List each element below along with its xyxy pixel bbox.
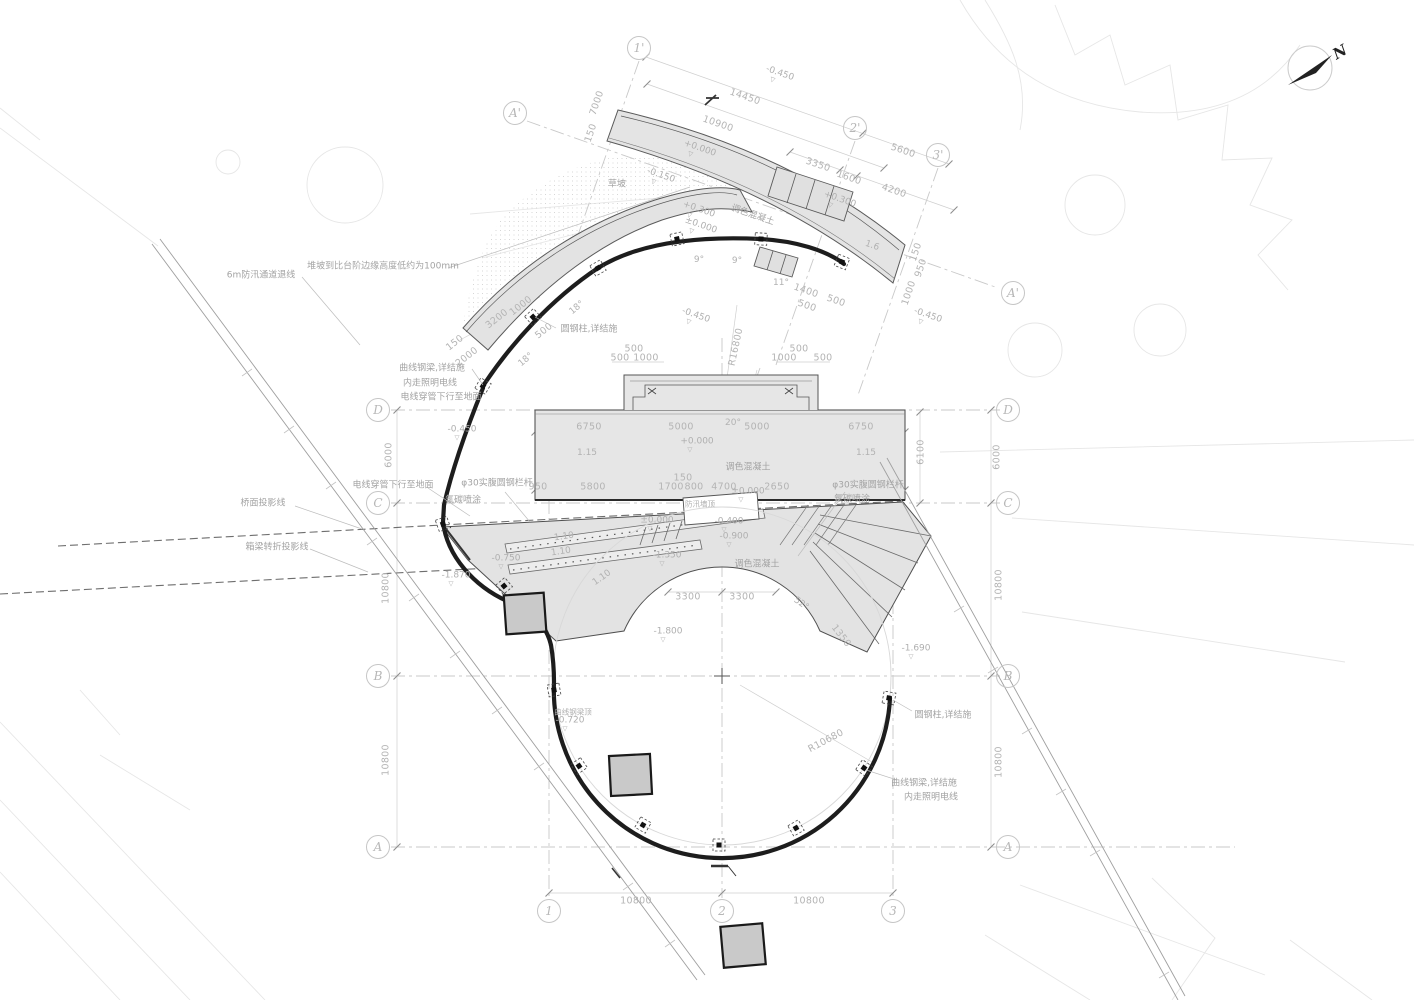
site-plan-drawing: N1445010900560033501600420014005005001.6… bbox=[0, 0, 1414, 1000]
road-edges bbox=[152, 239, 1185, 1000]
north-arrow-icon bbox=[1288, 46, 1332, 90]
plan-linework bbox=[0, 0, 1414, 1000]
circle-center-mark bbox=[714, 668, 730, 684]
lower-small-stairs bbox=[754, 247, 798, 277]
concrete-columns bbox=[504, 593, 766, 968]
platform-top-extension bbox=[624, 375, 818, 410]
central-platform bbox=[535, 375, 905, 500]
